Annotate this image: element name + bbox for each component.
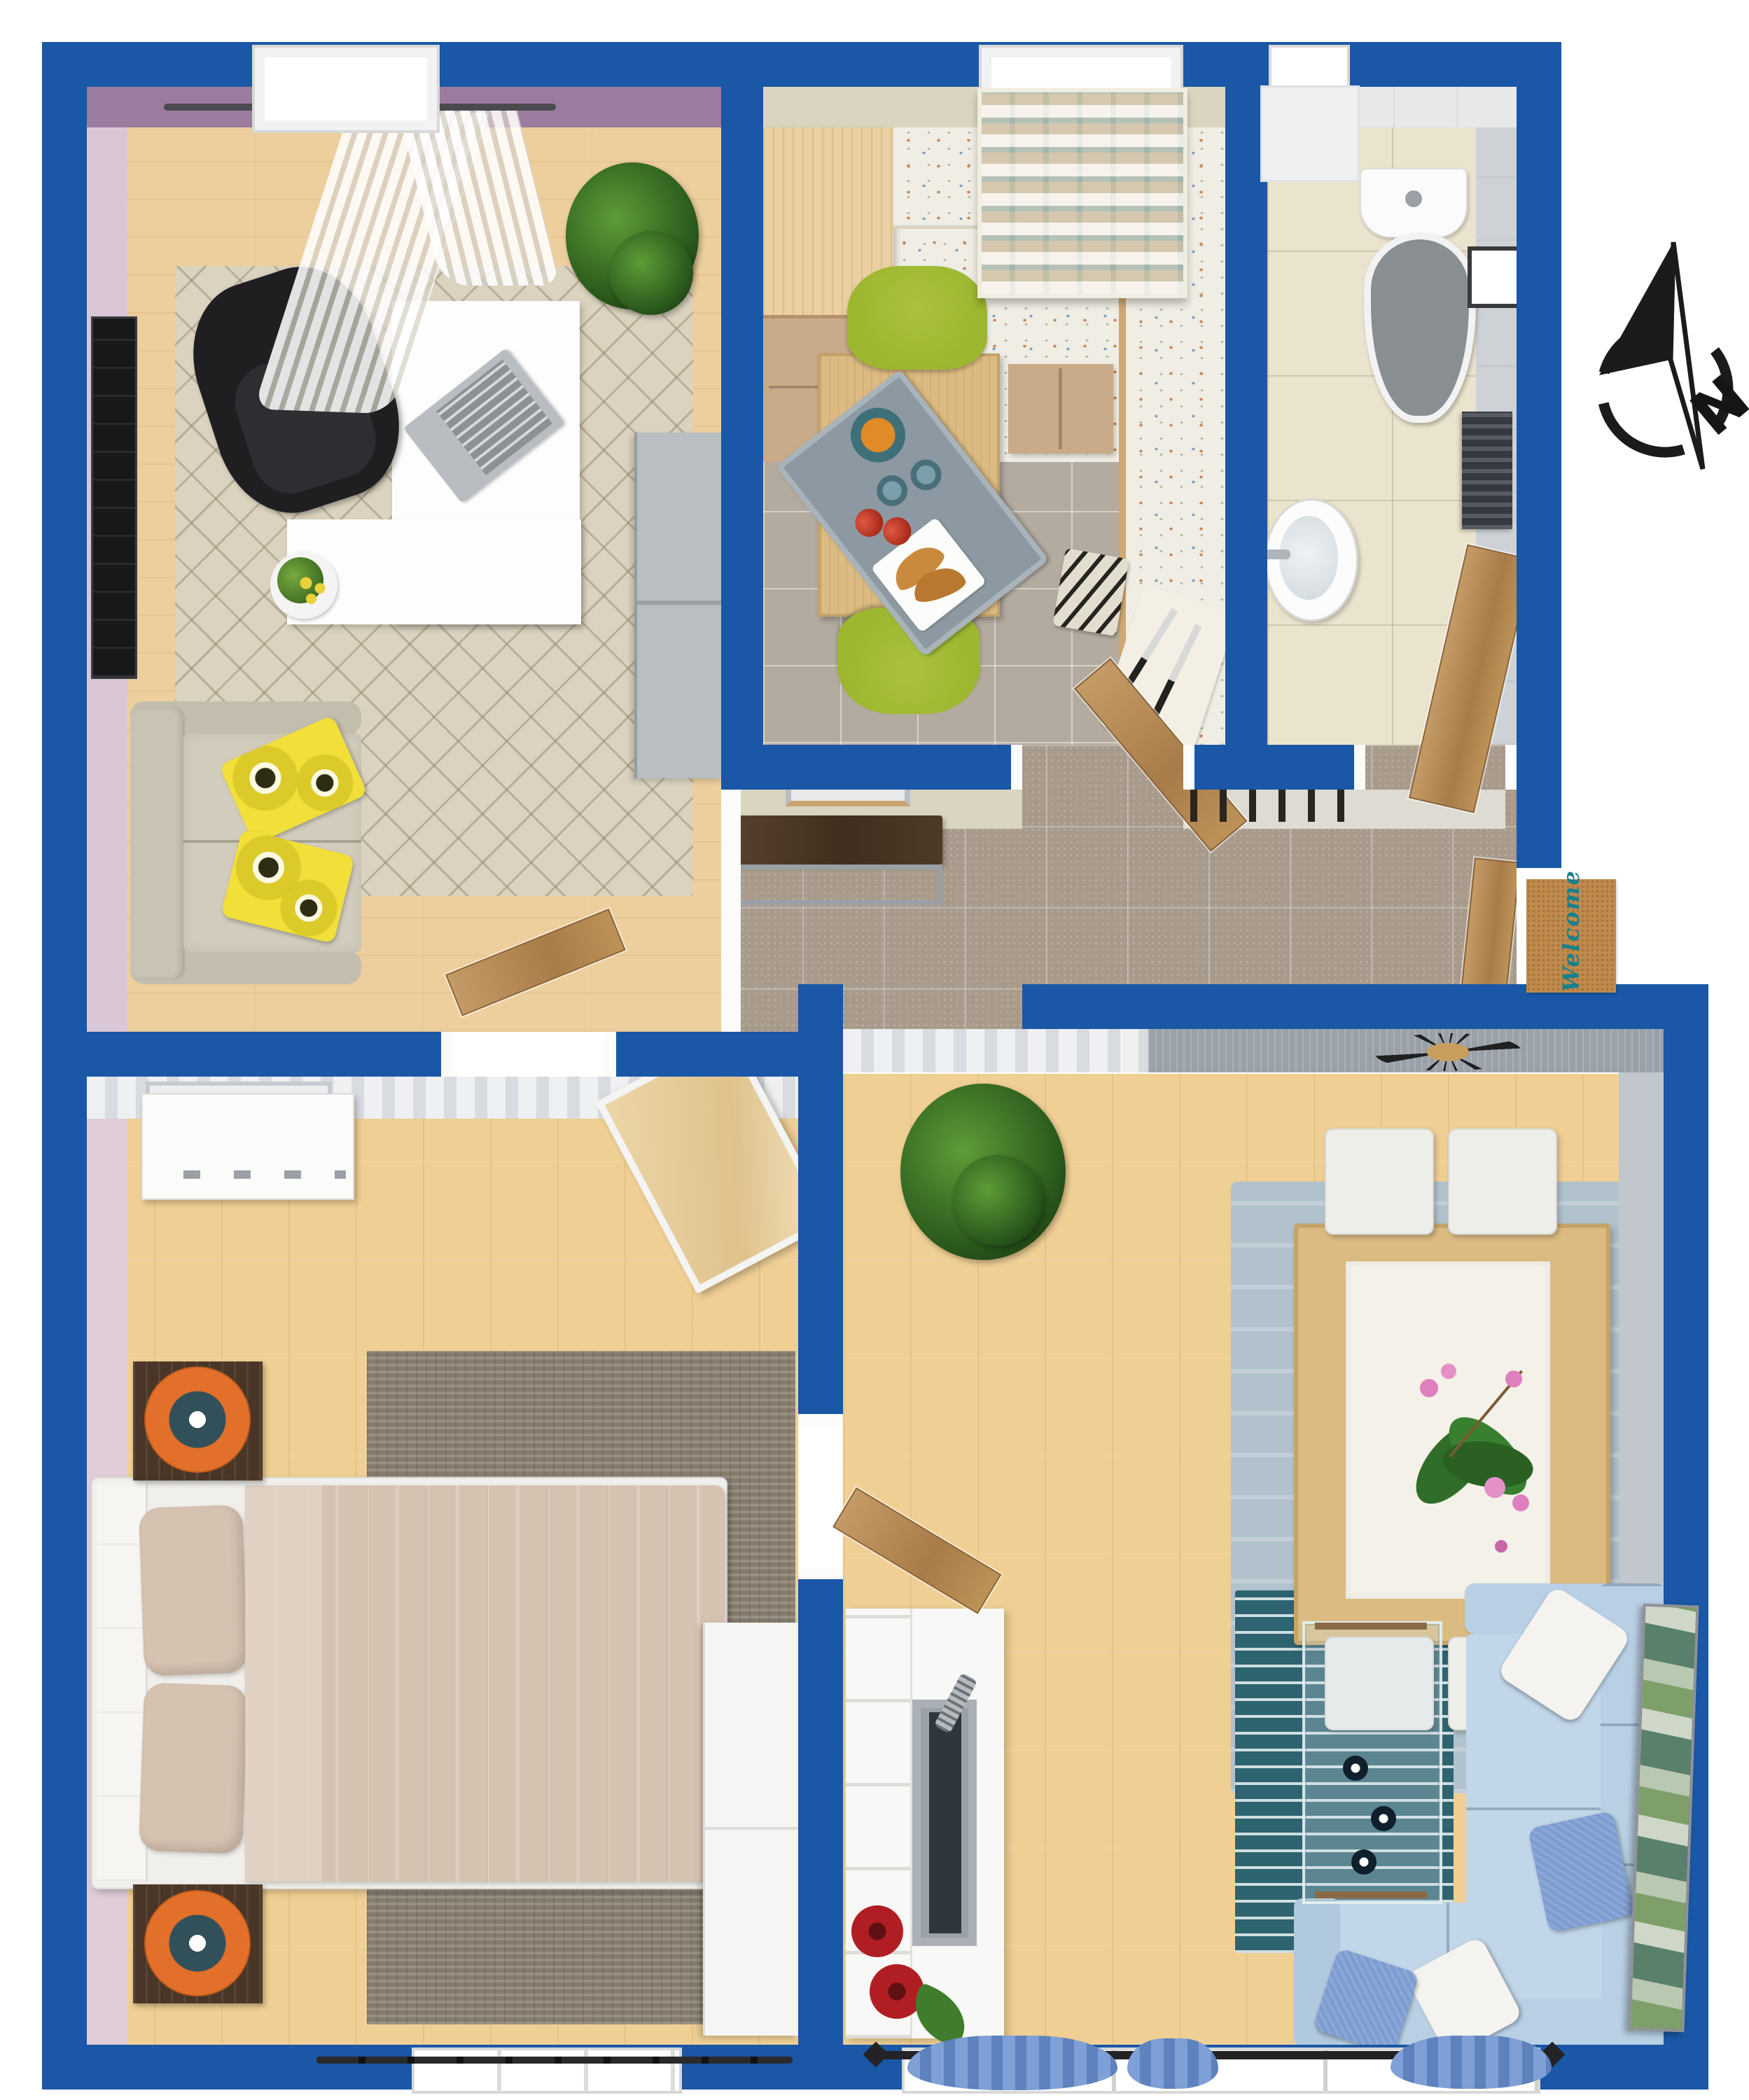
office-wall-tv [91,316,137,679]
jamb-living-door-bottom [798,1568,843,1579]
coffee-table-shelf-top [1315,1623,1427,1630]
lamp-bottom [144,1890,251,1996]
candle-1 [1343,1756,1368,1781]
bedroom-dresser [141,1093,354,1200]
lamp-top [144,1366,251,1473]
glass-1 [870,469,914,512]
bed-pillow-1 [139,1504,248,1676]
orchid-flower-3 [1505,1371,1522,1387]
floor-plan-canvas: Welcome N [0,0,1749,2100]
jamb-kitchen-door-right [1183,745,1194,790]
bed-duvet [245,1485,725,1882]
jamb-bath-door-left [1354,745,1365,790]
wall-bedroom-living-lower [798,1568,843,2045]
compass: N [1598,230,1749,524]
sunburst-clock [1374,1033,1522,1071]
glass-2 [905,454,948,497]
knife-block [1052,548,1129,636]
toilet-flush-button [1405,190,1422,207]
bathroom-sink [1264,498,1358,622]
bedroom-window [412,2047,682,2094]
wall-connector [798,984,843,1032]
toilet-tank [1360,168,1468,238]
jamb-bedroom-door-left [441,1032,454,1077]
kitchen-drawer-unit [1008,364,1113,454]
coffee-table-shelf-bottom [1315,1891,1427,1898]
office-sofa-backrest [130,707,185,980]
flatscreen-tv [912,1700,977,1946]
candle-2 [1371,1806,1396,1831]
living-curtain-clump-2 [1127,2038,1218,2089]
compass-needle-east-blade [1671,242,1703,469]
bedroom-curtain-rod [316,2057,793,2064]
orchid-flower-4 [1484,1477,1505,1498]
bed-duvet-fold [245,1485,322,1882]
kitchen-chair-top [847,266,987,370]
coat-rack-hooks [1190,788,1363,822]
dining-chair-1 [1325,1128,1434,1235]
bathroom-radiator [1462,412,1512,529]
kitchen-window-shade [977,88,1187,298]
office-window [252,45,440,133]
living-curtain-clump-3 [1391,2036,1552,2089]
desk-plant-flowers [295,573,330,608]
living-plant-2 [952,1155,1043,1246]
wall-exterior-right-upper [1517,42,1561,868]
hall-console-bench [727,815,942,864]
wall-bedroom-living-upper [798,1032,843,1414]
welcome-mat-text: Welcome [1558,880,1584,992]
office-cabinet-divider [637,601,724,605]
candle-3 [1351,1849,1377,1875]
sofa-seat-split-right [1466,1807,1601,1810]
wardrobe-door-split [705,1827,799,1830]
jamb-bedroom-door-right [604,1032,616,1077]
wall-bedroom-top-a [42,1032,441,1077]
orchid-flower-5 [1512,1494,1529,1511]
bed-pillow-2 [139,1682,248,1854]
sunburst-clock-center [1427,1043,1469,1061]
hall-bench-frame [737,864,942,905]
red-vase-1 [851,1905,903,1957]
living-curtain-clump-1 [907,2036,1117,2090]
tv-screen [929,1712,961,1933]
orchid-flower-2 [1441,1364,1456,1379]
kitchen-drawer-split [1059,368,1062,449]
hall-office-threshold [721,790,741,1032]
orchid-flower-6 [1495,1540,1507,1553]
tv-unit [846,1609,1004,2038]
orchid-centerpiece [1400,1365,1596,1575]
bathroom-window-sill [1260,85,1360,182]
bedroom-wardrobe [703,1623,799,2036]
jamb-bath-door-right [1505,745,1517,790]
welcome-mat: Welcome [1526,879,1616,993]
juice-pitcher [839,397,916,473]
office-cabinet [634,433,724,778]
bathroom-wall-frame [1468,246,1521,308]
living-wall-top-face-left [843,1029,1148,1072]
wall-kitchen-hall-a [721,745,1022,790]
jamb-kitchen-door-left [1011,745,1022,790]
apple-1 [849,503,889,542]
dresser-handles [150,1170,346,1179]
dining-chair-2 [1448,1128,1557,1235]
jamb-living-door-top [798,1414,843,1425]
orchid-flower-1 [1420,1379,1438,1397]
desk-plant-pot [270,552,337,619]
wall-office-kitchen [721,42,763,745]
wall-kitchen-hall-b [1183,745,1365,790]
office-corner-plant-2 [609,231,693,315]
